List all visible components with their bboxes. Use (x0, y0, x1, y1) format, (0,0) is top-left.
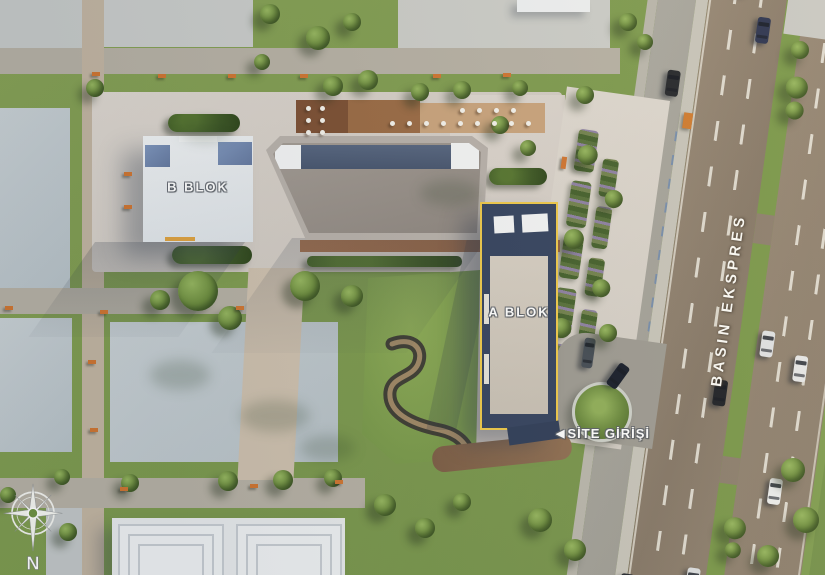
tree (528, 508, 552, 532)
roof-structure (451, 143, 479, 169)
roof-accent (179, 136, 217, 142)
roof-courtyard (145, 145, 170, 167)
roof-accent-orange (165, 237, 195, 241)
tree (260, 4, 280, 24)
roof-courtyard (218, 142, 252, 165)
tree (619, 13, 637, 31)
terrace-deck-mid (348, 100, 420, 133)
car (684, 567, 700, 575)
center-block-roof (273, 143, 481, 233)
compass-north-letter: N (26, 553, 39, 573)
bench (433, 74, 441, 78)
entrance-arrow-icon: ◀ (556, 427, 564, 440)
building-center-block (266, 136, 488, 240)
bench (300, 74, 308, 78)
bench (158, 74, 166, 78)
building-a-blok: A BLOK (480, 202, 558, 430)
hedge-planter (489, 168, 547, 185)
balcony-strip (484, 354, 489, 384)
roof-band-blue (299, 145, 457, 169)
roof-structure (494, 215, 515, 233)
bench (228, 74, 236, 78)
terrace-deck-light (420, 103, 545, 133)
b-blok-label: B BLOK (167, 179, 229, 194)
site-entrance-label: ◀ SİTE GİRİŞİ (556, 426, 650, 441)
plaza-bottom-left (0, 318, 72, 452)
roof-structure (275, 145, 301, 169)
hedge-planter (168, 114, 240, 132)
tree (343, 13, 361, 31)
building-bottom-terraced (112, 518, 345, 575)
plaza-left (0, 108, 70, 292)
site-entrance-text: SİTE GİRİŞİ (567, 426, 650, 441)
tree (415, 518, 435, 538)
plaza-road-corner (783, 0, 825, 40)
bench (561, 156, 568, 169)
tree (453, 493, 471, 511)
building-b-blok: B BLOK (143, 136, 253, 242)
plaza-top-mid (103, 0, 253, 47)
building-top-sliver (517, 0, 590, 12)
compass-rose-icon: N (0, 478, 68, 573)
tree (374, 494, 396, 516)
flower-planter (566, 180, 592, 228)
site-plan-render: BASIN EKSPRES B BLOK (0, 0, 825, 575)
a-blok-label: A BLOK (488, 304, 549, 319)
a-blok-roof (490, 256, 548, 414)
roof-structure (522, 213, 549, 232)
tree (306, 26, 330, 50)
plaza-top-left (0, 0, 88, 48)
terrace-deck-dark (296, 100, 348, 133)
compass-rose: N (0, 478, 68, 573)
flower-planter (591, 206, 613, 250)
